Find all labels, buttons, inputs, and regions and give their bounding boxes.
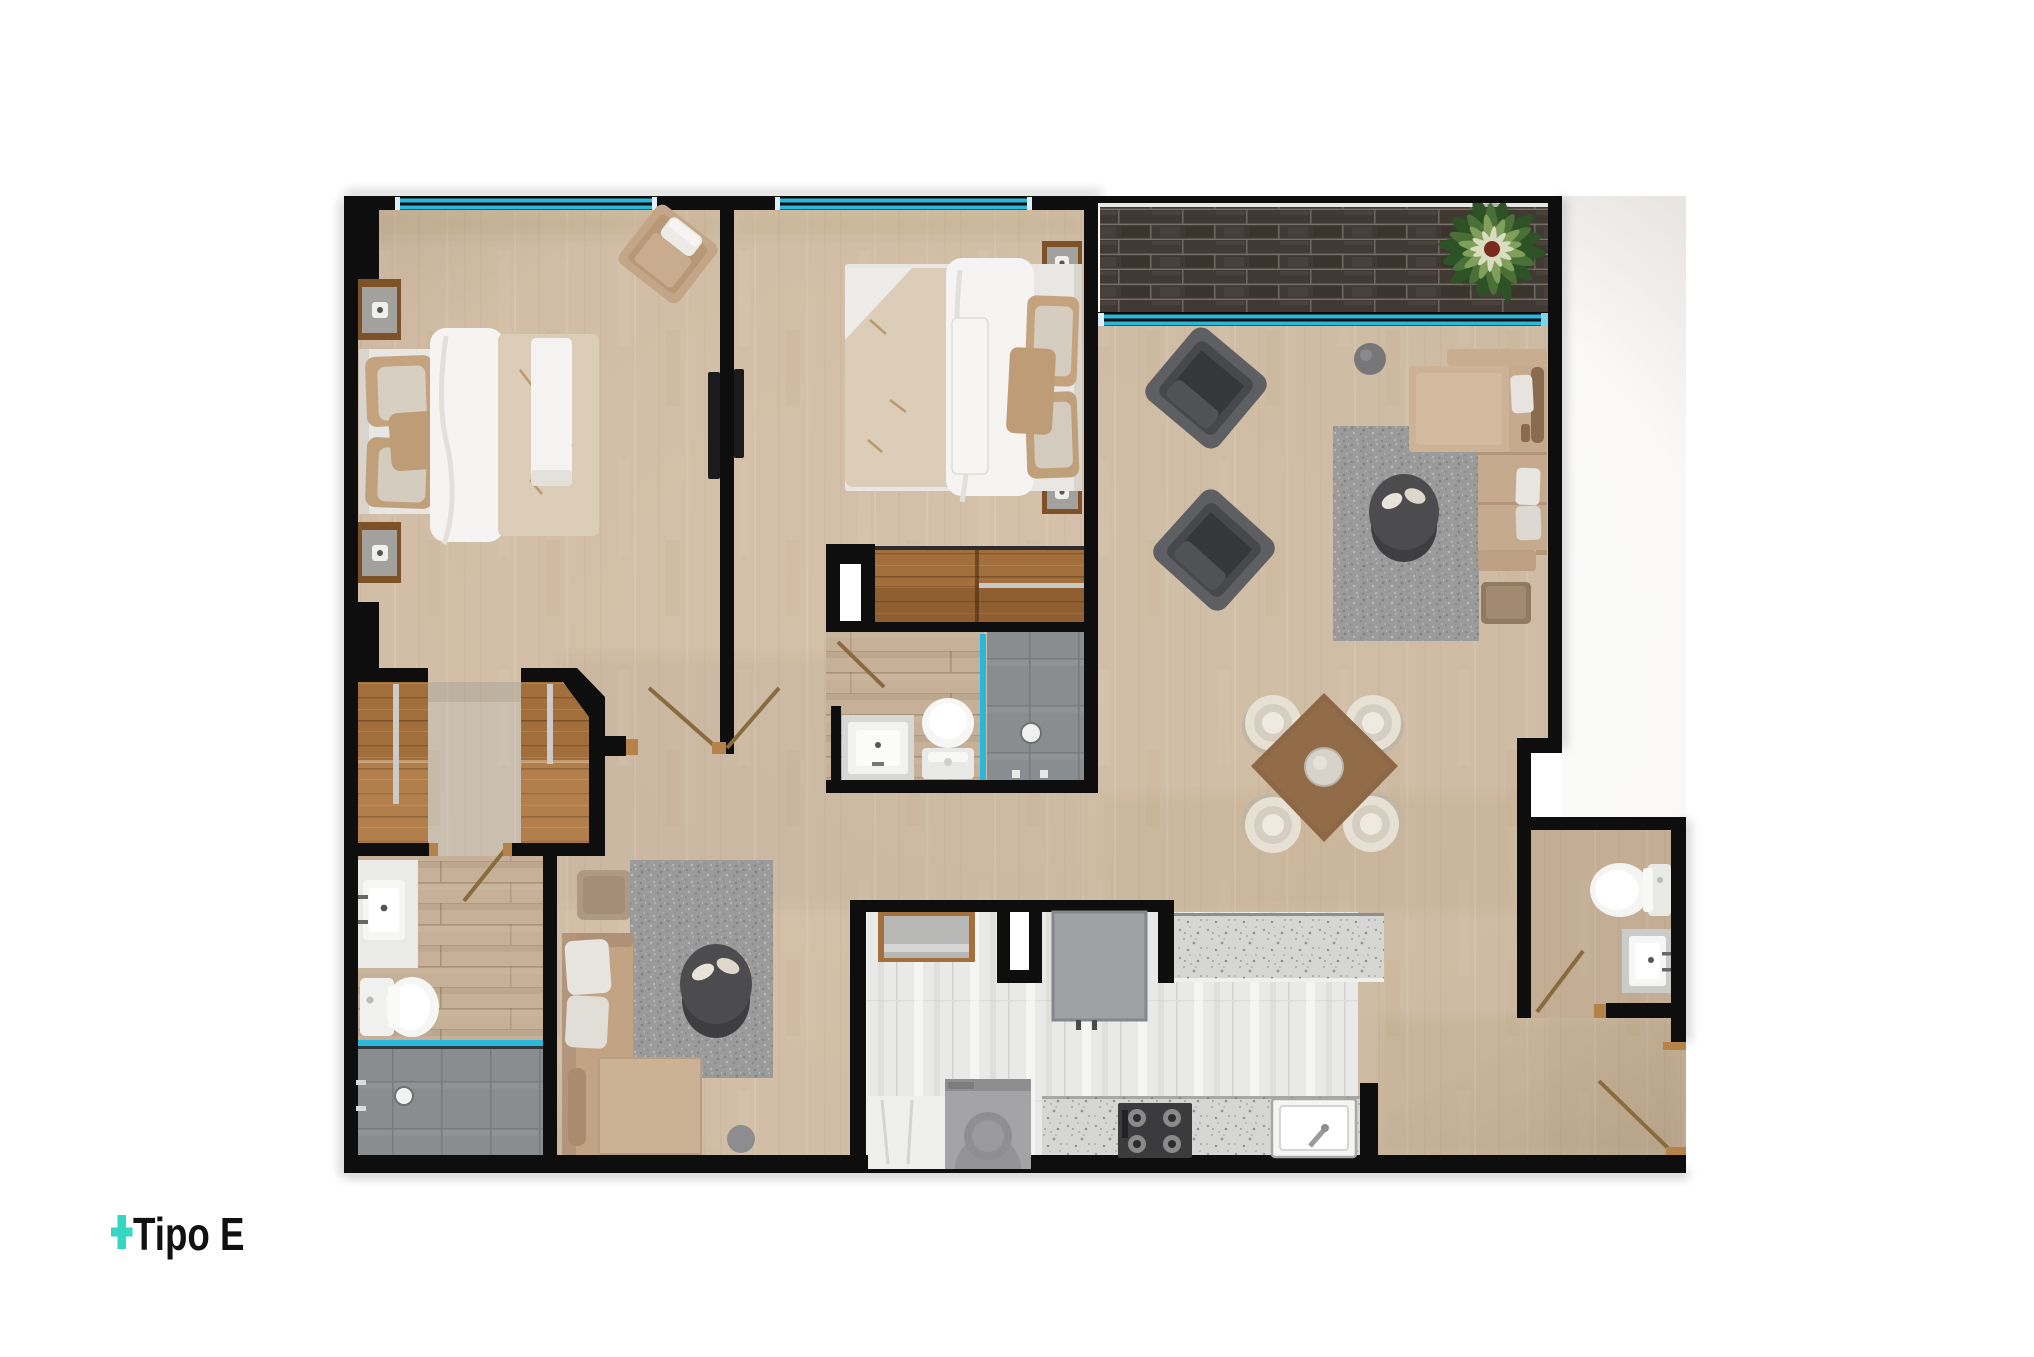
svg-text:Tipo E: Tipo E: [133, 1208, 245, 1260]
